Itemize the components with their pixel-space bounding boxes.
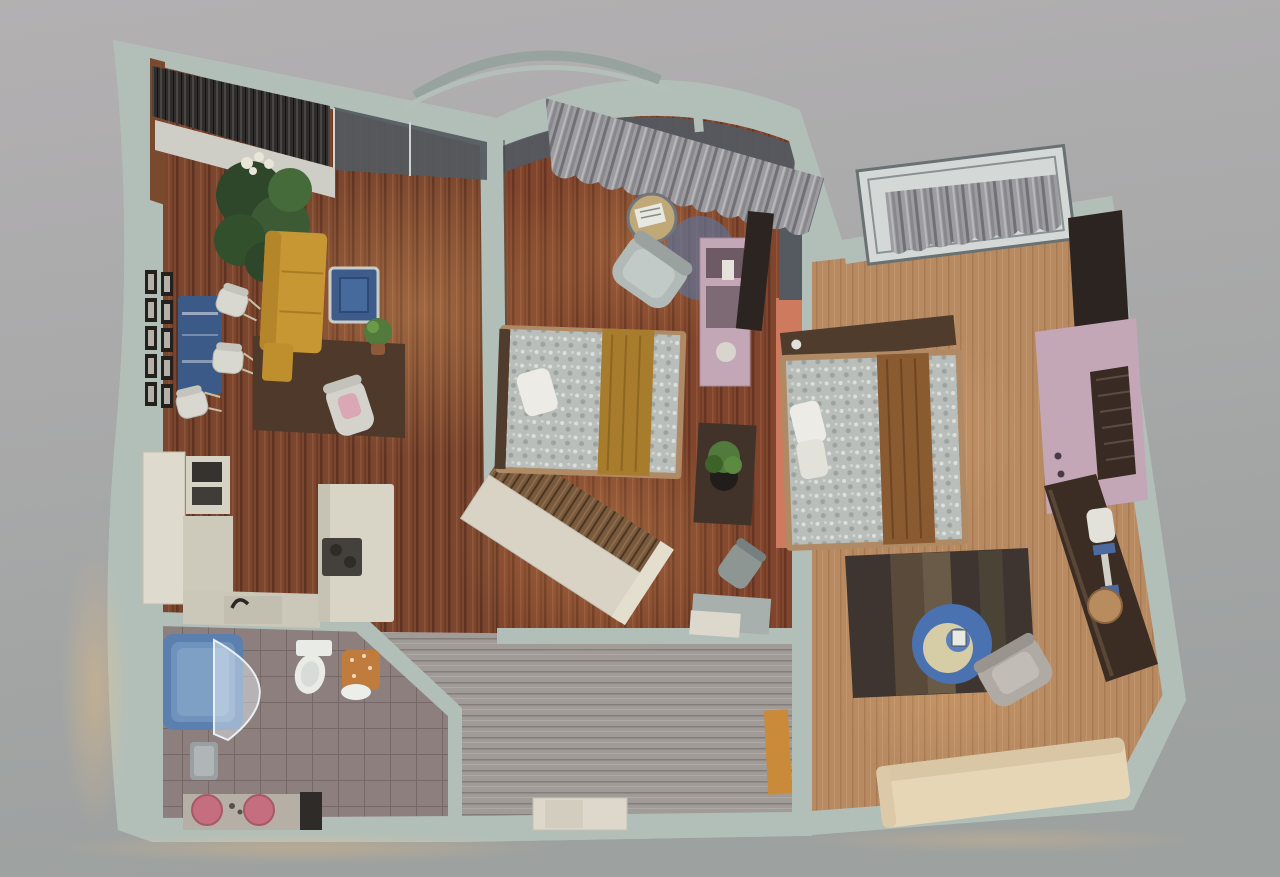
- knob: [1058, 471, 1065, 478]
- blue-wall-table: [178, 296, 222, 394]
- speaker-grille: [1090, 366, 1136, 480]
- tall-cabinet: [143, 452, 185, 604]
- open-door-amber: [764, 709, 792, 794]
- bench-with-plant: [693, 423, 756, 526]
- towel: [341, 684, 371, 700]
- round-mirror: [716, 342, 736, 362]
- bench-shelf: [689, 593, 771, 637]
- kitchen-island: [318, 484, 394, 622]
- sink-pink: [192, 795, 222, 825]
- towel-rail: [190, 742, 218, 780]
- exterior-glow: [800, 826, 1200, 854]
- oven-stack: [186, 456, 230, 514]
- exterior-glow: [50, 832, 550, 864]
- apartment-model: [50, 40, 1200, 864]
- knob: [1055, 453, 1062, 460]
- wall-bathroom-right: [448, 708, 462, 840]
- cooktop: [322, 538, 362, 576]
- round-stool: [1088, 589, 1122, 623]
- sink: [224, 596, 282, 624]
- screenshot-stage: [0, 0, 1280, 877]
- coffee-table-blue: [330, 268, 378, 322]
- sink-pink: [244, 795, 274, 825]
- glazing-above-coral: [779, 226, 802, 300]
- wall-entry-bedroom-right: [792, 548, 812, 836]
- bed-right: [778, 315, 968, 551]
- double-bed: [494, 325, 686, 479]
- table-item: [952, 630, 966, 646]
- floorplan-render: [0, 0, 1280, 877]
- bottle: [722, 260, 734, 280]
- exterior-glow: [60, 550, 130, 830]
- vanity-two-sinks: [183, 792, 322, 830]
